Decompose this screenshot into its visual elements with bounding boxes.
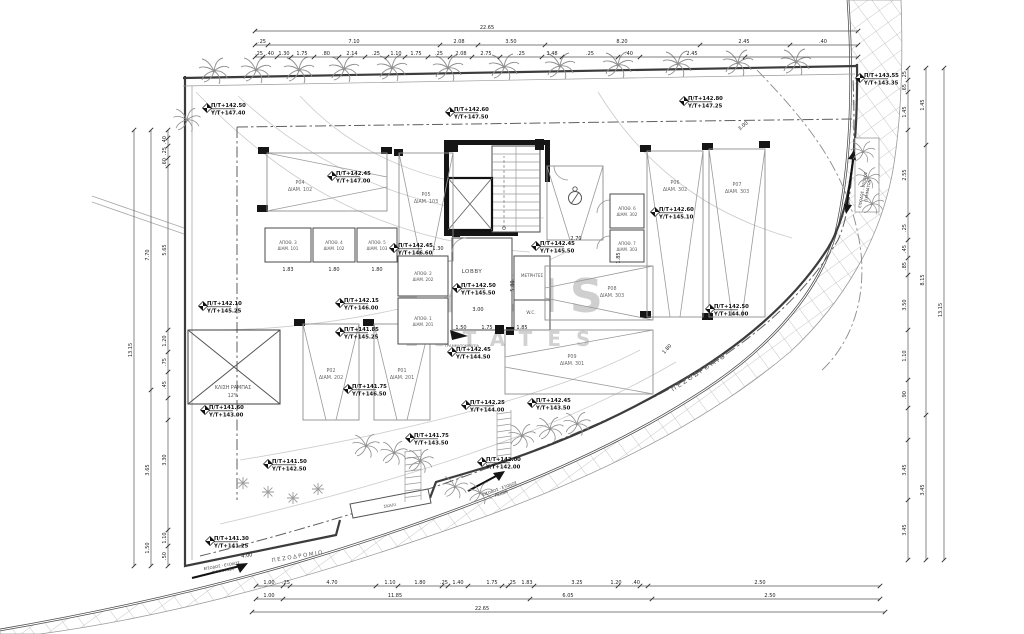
storage-room: ΑΠΟΘ. 2ΔΙΑΜ. 202: [398, 256, 448, 296]
elevation-bottom-value: Υ/Τ+144.00: [469, 408, 505, 414]
dim-label: 1.20: [162, 335, 168, 346]
interior-dim-label: 1.85: [516, 325, 527, 331]
dim-label: 1.10: [384, 580, 395, 586]
elevation-top-value: Π/Τ+142.45: [456, 347, 491, 353]
dim-label: 3.45: [902, 464, 908, 475]
dim-label: 1.00: [263, 593, 274, 599]
dimension-chain: 1.00.254.701.101.80.251.401.75.251.833.2…: [254, 580, 882, 588]
ramp-slope-label: ΚΛΙΣΗ ΡΑΜΠΑΣ: [215, 385, 251, 391]
interior-dim-label: 2.70: [570, 236, 581, 242]
palm-tree-icon: [174, 108, 201, 131]
palm-tree-icon: [407, 449, 434, 472]
storage-room: ΑΠΟΘ. 1ΔΙΑΜ. 201: [398, 298, 448, 344]
entrance-step: [405, 476, 421, 478]
column: [257, 205, 268, 212]
dim-label: .40: [162, 136, 168, 144]
elevation-marker: Π/Τ+142.45Υ/Τ+143.50: [528, 398, 572, 411]
parking-stall: P06ΔΙΑΜ. 302: [647, 151, 703, 317]
dimension-chain: .40.25.605.651.20.75.453.301.10.50: [162, 128, 170, 568]
interior-dim-label: 3.00: [472, 307, 483, 313]
storage-id: ΑΠΟΘ. 4: [325, 240, 343, 245]
elevation-bottom-value: Υ/Τ+145.10: [658, 215, 694, 221]
dimension-chain: .25.401.301.75.802.14.251.101.75.252.082…: [253, 51, 860, 59]
dim-label: 2.45: [738, 39, 749, 45]
dim-label: .90: [902, 391, 908, 399]
dim-label: 6.05: [562, 593, 573, 599]
dim-label: 3.65: [145, 464, 151, 475]
dim-label: 1.45: [902, 106, 908, 117]
step-rail: [497, 410, 511, 460]
interior-dim-label: 1.30: [432, 246, 443, 252]
elevation-bottom-value: Υ/Τ+145.25: [343, 335, 379, 341]
storage-id: ΑΠΟΘ. 6: [618, 206, 636, 211]
stall-id: P02: [327, 368, 336, 374]
entrance-step: [497, 448, 511, 450]
plant-icon: [262, 486, 274, 498]
palm-tree-icon: [241, 57, 271, 83]
meters-room-label: ΜΕΤΡΗΤΕΣ: [521, 273, 544, 278]
plant-icon: [312, 483, 324, 495]
elevation-bottom-value: Υ/Τ+146.60: [397, 251, 433, 257]
dim-label: .45: [902, 245, 908, 253]
elevation-marker: Π/Τ+141.30Υ/Τ+141.25: [206, 536, 250, 549]
stall-apartment: ΔΙΑΜ. 301: [560, 361, 584, 367]
storage-apartment: ΔΙΑΜ. 202: [413, 277, 434, 282]
dimension-chain: 22.65: [253, 25, 860, 33]
dim-label: 3.50: [505, 39, 516, 45]
stall-id: P06: [671, 180, 680, 186]
storage-apartment: ΔΙΑΜ. 303: [617, 247, 638, 252]
site-plan-canvas: KADIS ESTATES P04ΔΙΑΜ. 102P05ΔΙΑΜ. 103P0…: [0, 0, 1024, 634]
interior-dim-label: 5.80: [510, 280, 516, 291]
elevation-top-value: Π/Τ+141.30: [214, 536, 249, 542]
dim-label: 13.15: [128, 343, 134, 357]
dim-label: 1.80: [414, 580, 425, 586]
dim-label: .25: [517, 51, 525, 57]
elevation-top-value: Π/Τ+142.80: [688, 96, 723, 102]
elevation-marker: Π/Τ+142.15Υ/Τ+146.00: [336, 298, 380, 311]
stall-apartment: ΔΙΑΜ. 303: [600, 293, 624, 299]
elevation-bottom-value: Υ/Τ+147.40: [210, 111, 246, 117]
dim-label: 13.15: [938, 303, 944, 317]
parking-stall: P07ΔΙΑΜ. 303: [709, 149, 765, 317]
dim-label: 22.65: [475, 606, 489, 612]
stall-id: P08: [608, 286, 617, 292]
elevation-bottom-value: Υ/Τ+146.50: [351, 392, 387, 398]
dim-label: .25: [435, 51, 443, 57]
dim-label: 2.50: [754, 580, 765, 586]
storage-apartment: ΔΙΑΜ. 103: [367, 246, 388, 251]
elevation-bottom-value: Υ/Τ+147.00: [335, 179, 371, 185]
ramp-slope-value: 12%: [228, 393, 239, 399]
dim-label: 22.65: [480, 25, 494, 31]
dimension-chain: .25.651.452.55.25.45.853.501.10.903.453.…: [902, 66, 910, 562]
palm-tree-icon: [199, 58, 229, 84]
elevation-top-value: Π/Τ+142.50: [714, 304, 749, 310]
elevation-top-value: Π/Τ+141.60: [209, 405, 244, 411]
dim-label: 1.10: [902, 350, 908, 361]
storage-apartment: ΔΙΑΜ. 101: [278, 246, 299, 251]
elevation-bottom-value: Υ/Τ+141.25: [213, 544, 249, 550]
dim-label: .40: [266, 51, 274, 57]
dim-label: 11.85: [388, 593, 402, 599]
dim-label: 2.55: [902, 169, 908, 180]
entrance-step: [497, 430, 511, 432]
storage-apartment: ΔΙΑΜ. 302: [617, 212, 638, 217]
storage-room: ΑΠΟΘ. 5ΔΙΑΜ. 103: [357, 228, 397, 262]
wc-room-label: W.C.: [526, 310, 535, 315]
dim-label: .40: [819, 39, 827, 45]
elevation-marker: Π/Τ+141.50Υ/Τ+142.50: [264, 459, 308, 472]
plant-icon: [237, 477, 249, 489]
palm-tree-icon: [781, 49, 811, 75]
elevation-marker: Π/Τ+141.75Υ/Τ+143.50: [406, 433, 450, 446]
dim-label: 1.83: [521, 580, 532, 586]
dim-label: .25: [440, 580, 448, 586]
palm-tree-icon: [509, 424, 536, 447]
dim-label: 2.08: [455, 51, 466, 57]
dim-label: .75: [162, 358, 168, 366]
elevation-bottom-value: Υ/Τ+146.00: [343, 306, 379, 312]
dimension-chain: 7.703.651.50: [145, 128, 153, 568]
entrance-step: [497, 424, 511, 426]
column: [759, 141, 770, 148]
palm-tree-icon: [329, 56, 359, 82]
elevation-marker: Π/Τ+142.45Υ/Τ+144.50: [448, 347, 492, 360]
core-wall: [545, 140, 550, 182]
column: [495, 325, 504, 334]
elevation-top-value: Π/Τ+142.10: [207, 301, 242, 307]
dim-label: 3.45: [902, 524, 908, 535]
storage-id: ΑΠΟΘ. 7: [618, 241, 636, 246]
dim-label: 3.50: [902, 299, 908, 310]
dim-label: 3.25: [571, 580, 582, 586]
elevation-top-value: Π/Τ+142.60: [454, 107, 489, 113]
elevation-marker: Π/Τ+142.45Υ/Τ+145.50: [532, 241, 576, 254]
dim-label: .60: [162, 158, 168, 166]
door-swing-arc: [597, 200, 610, 213]
dim-label: .65: [902, 84, 908, 92]
elevation-bottom-value: Υ/Τ+145.50: [539, 249, 575, 255]
storage-room: ΑΠΟΘ. 6ΔΙΑΜ. 302: [610, 194, 644, 228]
dim-label: 7.10: [348, 39, 359, 45]
neighbour-boundary: [92, 196, 184, 234]
elevation-bottom-value: Υ/Τ+143.00: [208, 413, 244, 419]
stall-apartment: ΔΙΑΜ. 303: [725, 189, 749, 195]
storage-room: ΑΠΟΘ. 3ΔΙΑΜ. 101: [265, 228, 311, 262]
elevation-top-value: Π/Τ+142.45: [540, 241, 575, 247]
dim-label: 1.50: [145, 542, 151, 553]
dim-label: .40: [632, 580, 640, 586]
dim-label: 1.40: [452, 580, 463, 586]
dim-label: .80: [322, 51, 330, 57]
elevation-marker: Π/Τ+142.60Υ/Τ+145.10: [651, 207, 695, 220]
elevation-marker: Π/Τ+141.75Υ/Τ+146.50: [344, 384, 388, 397]
dim-label: .25: [902, 71, 908, 79]
stall-id: P01: [398, 368, 407, 374]
elevation-bottom-value: Υ/Τ+145.50: [460, 291, 496, 297]
column: [363, 319, 374, 326]
stall-id: P07: [733, 182, 742, 188]
dim-label: 8.20: [616, 39, 627, 45]
dim-label: 7.70: [145, 249, 151, 260]
dim-label: .25: [508, 580, 516, 586]
palm-tree-icon: [537, 417, 564, 440]
stall-apartment: ΔΙΑΜ. 102: [288, 187, 312, 193]
stall-apartment: ΔΙΑΜ. 202: [319, 375, 343, 381]
door-swing-arc: [554, 166, 568, 180]
palm-tree-icon: [381, 441, 408, 464]
elevation-top-value: Π/Τ+142.50: [461, 283, 496, 289]
elevation-top-value: Π/Τ+142.60: [659, 207, 694, 213]
elevation-marker: Π/Τ+142.25Υ/Τ+144.00: [462, 400, 506, 413]
plant-icon: [287, 492, 299, 504]
dim-label: 2.75: [480, 51, 491, 57]
elevation-top-value: Π/Τ+141.75: [414, 433, 449, 439]
dim-label: 1.45: [920, 99, 926, 110]
stall-apartment: ΔΙΑΜ. 201: [390, 375, 414, 381]
elevation-bottom-value: Υ/Τ+143.35: [863, 81, 899, 87]
storage-apartment: ΔΙΑΜ. 201: [413, 322, 434, 327]
site-boundary-top: [183, 66, 858, 78]
dim-label: .25: [372, 51, 380, 57]
door-swing-arc: [597, 236, 610, 249]
interior-dim-label: 1.80: [371, 267, 382, 273]
stall-id: P09: [568, 354, 577, 360]
elevation-marker: Π/Τ+141.60Υ/Τ+143.00: [201, 405, 245, 418]
elevation-marker: Π/Τ+142.10Υ/Τ+145.25: [199, 301, 243, 314]
interior-dim-label: 1.80: [661, 343, 673, 355]
dim-label: 1.00: [263, 580, 274, 586]
dim-label: 3.30: [162, 454, 168, 465]
dim-label: 8.15: [920, 274, 926, 285]
dimension-chain: 13.15: [938, 66, 946, 562]
entrance-step: [497, 418, 511, 420]
stall-apartment: ΔΙΑΜ. 302: [663, 187, 687, 193]
stall-id: P04: [296, 180, 305, 186]
dim-label: 4.70: [326, 580, 337, 586]
dim-label: 1.75: [486, 580, 497, 586]
dim-label: 1.10: [390, 51, 401, 57]
storage-id: ΑΠΟΘ. 5: [368, 240, 386, 245]
dim-label: .40: [625, 51, 633, 57]
storage-id: ΑΠΟΘ. 1: [414, 316, 432, 321]
elevation-bottom-value: Υ/Τ+143.50: [535, 406, 571, 412]
dimension-chain: 1.458.153.45: [920, 66, 928, 562]
elevation-marker: Π/Τ+142.50Υ/Τ+147.40: [203, 103, 247, 116]
dim-label: 2.45: [686, 51, 697, 57]
palm-tree-icon: [284, 57, 314, 83]
dimension-chain: 22.65: [250, 606, 887, 614]
dim-label: .25: [255, 51, 263, 57]
storage-id: ΑΠΟΘ. 2: [414, 271, 432, 276]
dim-label: 3.48: [546, 51, 557, 57]
elevation-bottom-value: Υ/Τ+147.25: [687, 104, 723, 110]
elevation-top-value: Π/Τ+142.45: [398, 243, 433, 249]
dim-label: 3.45: [920, 484, 926, 495]
elevation-bottom-value: Υ/Τ+142.00: [485, 465, 521, 471]
dim-label: 2.08: [453, 39, 464, 45]
storage-id: ΑΠΟΘ. 3: [279, 240, 297, 245]
dim-label: .25: [902, 224, 908, 232]
storage-apartment: ΔΙΑΜ. 102: [324, 246, 345, 251]
interior-dim-label: 3.00: [737, 120, 749, 132]
interior-dim-label: 1.80: [328, 267, 339, 273]
dim-label: .25: [586, 51, 594, 57]
column: [506, 327, 514, 335]
elevation-top-value: Π/Τ+142.25: [470, 400, 505, 406]
entrance-step: [497, 454, 511, 456]
elevation-top-value: Π/Τ+142.00: [486, 457, 521, 463]
elevation-bottom-value: Υ/Τ+145.25: [206, 309, 242, 315]
dim-label: 5.65: [162, 244, 168, 255]
elevation-bottom-value: Υ/Τ+147.50: [453, 115, 489, 121]
dim-label: 1.30: [278, 51, 289, 57]
core-wall: [444, 140, 550, 145]
elevation-marker: Π/Τ+142.80Υ/Τ+147.25: [680, 96, 724, 109]
dim-label: .25: [282, 580, 290, 586]
elevation-marker: Π/Τ+142.60Υ/Τ+147.50: [446, 107, 490, 120]
dim-label: .85: [902, 262, 908, 270]
elevation-top-value: Π/Τ+143.55: [864, 73, 899, 79]
column: [702, 313, 713, 320]
dim-label: .50: [162, 552, 168, 560]
dim-label: .45: [162, 381, 168, 389]
motorcycle-bay: [547, 166, 603, 240]
dim-label: .25: [162, 147, 168, 155]
elevation-marker: Π/Τ+141.85Υ/Τ+145.25: [336, 327, 380, 340]
site-plan-drawing: KADIS ESTATES P04ΔΙΑΜ. 102P05ΔΙΑΜ. 103P0…: [0, 0, 1024, 634]
elevation-top-value: Π/Τ+142.50: [211, 103, 246, 109]
entrance-step: [405, 483, 421, 485]
interior-dim-label: 1.75: [481, 325, 492, 331]
palm-tree-icon: [723, 50, 753, 76]
dim-label: 1.75: [296, 51, 307, 57]
column: [449, 141, 458, 152]
interior-dim-label: 1.50: [455, 325, 466, 331]
dim-label: 1.20: [610, 580, 621, 586]
dim-label: 1.75: [410, 51, 421, 57]
interior-dim-label: 4.00: [241, 552, 253, 560]
interior-dim-label: 1.83: [282, 267, 293, 273]
storage-room: ΑΠΟΘ. 4ΔΙΑΜ. 102: [313, 228, 355, 262]
stall-apartment: ΔΙΑΜ. 103: [414, 199, 438, 205]
entrance-step: [497, 436, 511, 438]
elevation-top-value: Π/Τ+141.75: [352, 384, 387, 390]
dimension-chain: 1.0011.856.052.50: [254, 593, 882, 601]
column: [394, 149, 403, 156]
dim-label: 1.10: [162, 532, 168, 543]
elevation-top-value: Π/Τ+141.50: [272, 459, 307, 465]
palm-tree-icon: [489, 54, 519, 80]
dimension-chain: .257.102.083.508.202.45.40: [253, 39, 860, 47]
column: [535, 139, 544, 150]
elevation-bottom-value: Υ/Τ+142.50: [271, 467, 307, 473]
ramp-cross: [188, 330, 280, 404]
elevation-bottom-value: Υ/Τ+144.50: [455, 355, 491, 361]
elevation-bottom-value: Υ/Τ+143.50: [413, 441, 449, 447]
stall-id: P05: [422, 192, 431, 198]
palm-tree-icon: [353, 434, 380, 457]
elevation-top-value: Π/Τ+142.45: [336, 171, 371, 177]
lobby-label: LOBBY: [462, 269, 483, 275]
dim-label: 2.14: [346, 51, 357, 57]
elevation-top-value: Π/Τ+142.45: [536, 398, 571, 404]
interior-dim-label: 1.85: [616, 252, 622, 263]
elevation-bottom-value: Υ/Τ+144.00: [713, 312, 749, 318]
dimension-chain: 13.15: [128, 128, 136, 568]
elevation-top-value: Π/Τ+142.15: [344, 298, 379, 304]
dim-label: 2.50: [764, 593, 775, 599]
dim-label: .25: [258, 39, 266, 45]
elevation-top-value: Π/Τ+141.85: [344, 327, 379, 333]
elevation-marker: Π/Τ+142.45Υ/Τ+147.00: [328, 171, 372, 184]
